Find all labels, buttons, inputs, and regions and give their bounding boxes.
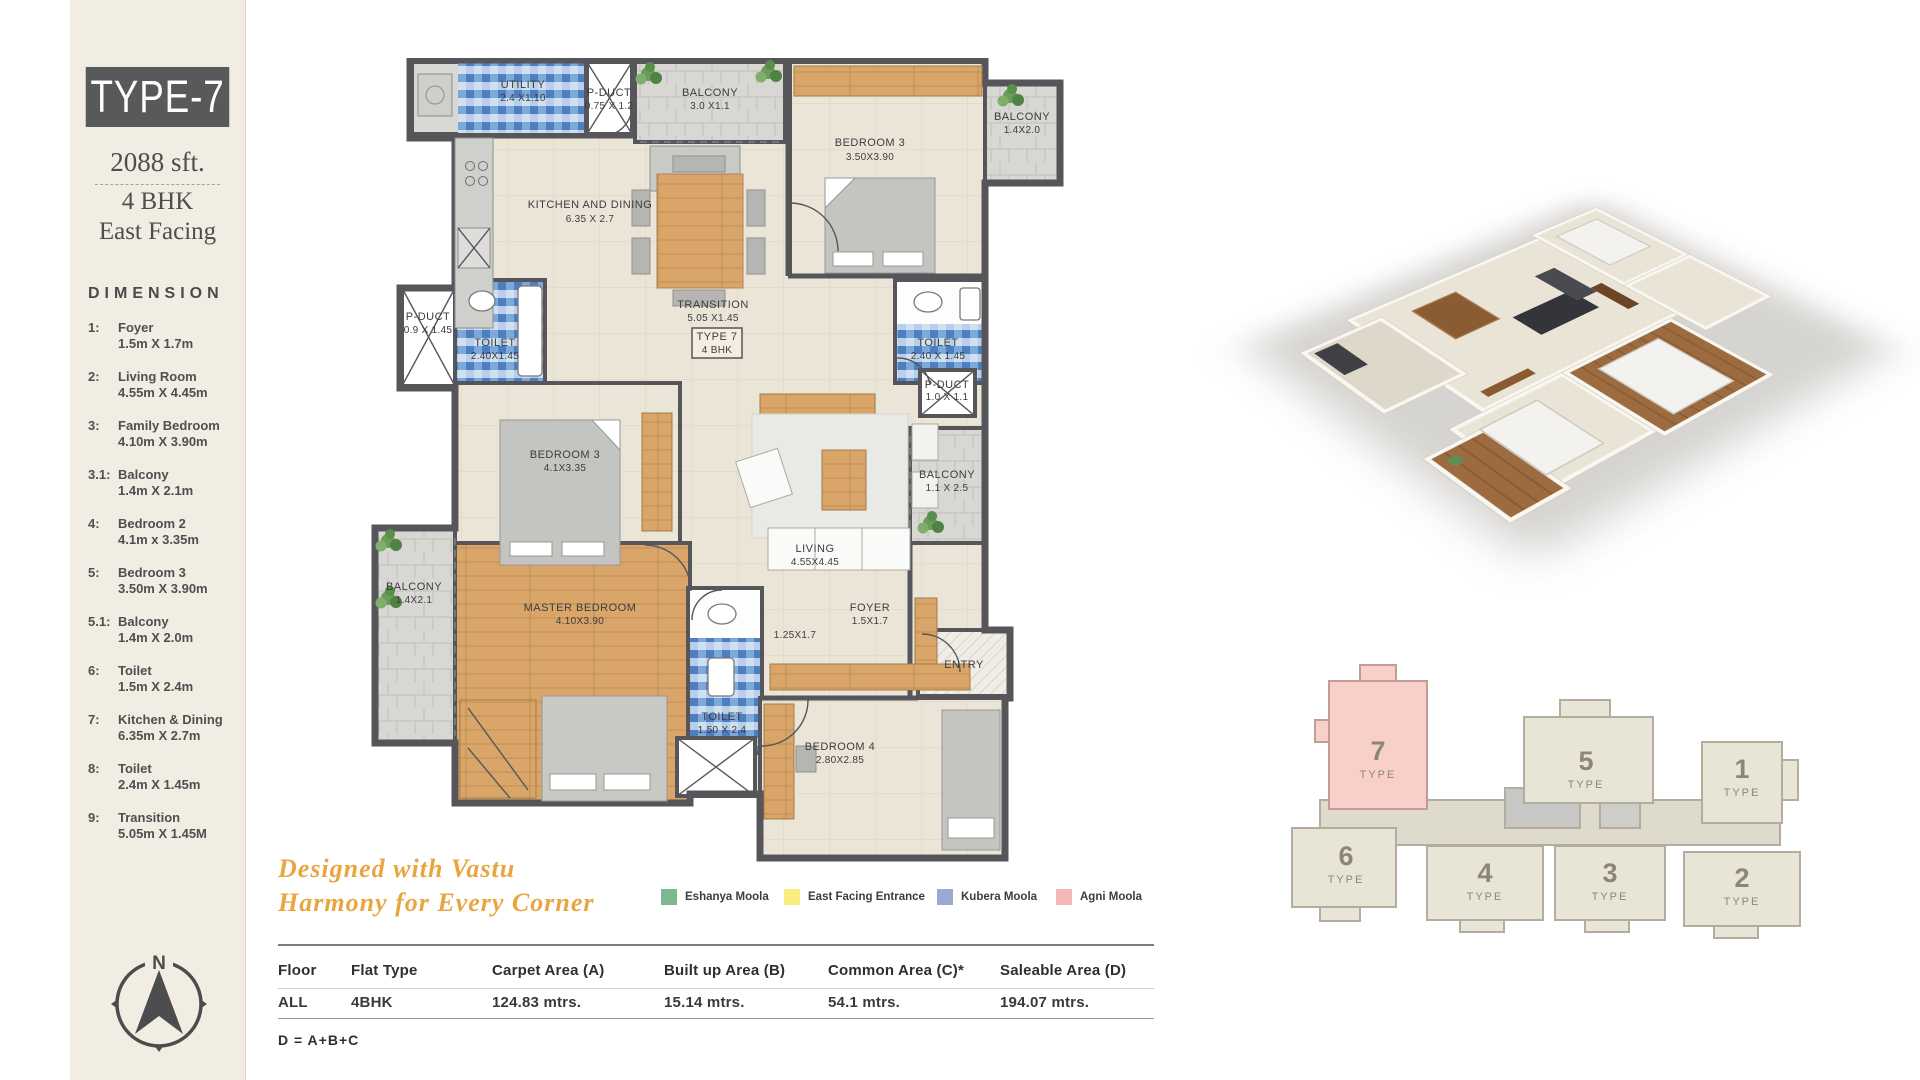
legend-swatch-green <box>661 889 677 905</box>
svg-text:2.80X2.85: 2.80X2.85 <box>816 755 864 766</box>
room-label: BEDROOM 4 <box>805 741 876 753</box>
legend-swatch-yellow <box>784 889 800 905</box>
svg-text:3.0 X1.1: 3.0 X1.1 <box>690 101 730 112</box>
item-text: Toilet2.4m X 1.45m <box>118 761 200 793</box>
svg-text:1.5X1.7: 1.5X1.7 <box>852 616 889 627</box>
room-label: TOILET <box>917 337 958 349</box>
legend-item-eshanya: Eshanya Moola <box>661 889 769 905</box>
svg-text:0.75 X 1.2: 0.75 X 1.2 <box>585 101 634 112</box>
svg-text:TYPE: TYPE <box>1724 787 1761 799</box>
cell-builtup: 15.14 mtrs. <box>664 994 745 1011</box>
item-number: 4: <box>88 516 118 548</box>
list-item: 1:Foyer1.5m X 1.7m <box>88 320 240 352</box>
room-label: FOYER <box>850 602 890 614</box>
keyplan-unit-1 <box>1702 742 1798 823</box>
svg-text:5.05 X1.45: 5.05 X1.45 <box>687 313 739 324</box>
svg-text:1.50 X 2.4: 1.50 X 2.4 <box>698 725 747 736</box>
room-label: P-DUCT <box>587 87 632 99</box>
dimension-list: 1:Foyer1.5m X 1.7m 2:Living Room4.55m X … <box>88 320 240 859</box>
svg-text:4.10X3.90: 4.10X3.90 <box>556 616 604 627</box>
vastu-heading: Designed with Vastu Harmony for Every Co… <box>278 852 595 920</box>
item-number: 5.1: <box>88 614 118 646</box>
floor-plan-2d: UTILITY2.4 X1.10 P-DUCT0.75 X 1.2 BALCON… <box>370 58 1070 868</box>
svg-text:1.1 X 2.5: 1.1 X 2.5 <box>926 483 969 494</box>
entry-label: ENTRY <box>944 659 984 671</box>
cell-saleable: 194.07 mtrs. <box>1000 994 1089 1011</box>
svg-text:4.1X3.35: 4.1X3.35 <box>544 463 587 474</box>
dimension-title: DIMENSION <box>88 285 224 303</box>
table-rule <box>278 944 1154 946</box>
table-rule <box>278 988 1154 989</box>
col-header-flattype: Flat Type <box>351 962 418 979</box>
list-item: 3.1:Balcony1.4m X 2.1m <box>88 467 240 499</box>
unit-area: 2088 sft. <box>70 147 245 178</box>
item-number: 8: <box>88 761 118 793</box>
item-text: Balcony1.4m X 2.0m <box>118 614 193 646</box>
north-arrow-icon <box>135 970 183 1034</box>
col-header-saleable: Saleable Area (D) <box>1000 962 1126 979</box>
list-item: 3:Family Bedroom4.10m X 3.90m <box>88 418 240 450</box>
svg-text:2.4 X1.10: 2.4 X1.10 <box>500 93 546 104</box>
col-header-floor: Floor <box>278 962 317 979</box>
list-item: 8:Toilet2.4m X 1.45m <box>88 761 240 793</box>
list-item: 2:Living Room4.55m X 4.45m <box>88 369 240 401</box>
svg-text:TYPE: TYPE <box>1360 769 1397 781</box>
svg-text:6: 6 <box>1338 841 1353 871</box>
svg-text:0.9 X 1.45: 0.9 X 1.45 <box>404 325 453 336</box>
cell-flattype: 4BHK <box>351 994 393 1011</box>
legend-label: East Facing Entrance <box>808 891 925 903</box>
col-header-carpet: Carpet Area (A) <box>492 962 604 979</box>
table-rule <box>278 1018 1154 1019</box>
svg-text:2: 2 <box>1734 863 1749 893</box>
legend-item-kubera: Kubera Moola <box>937 889 1037 905</box>
legend-label: Kubera Moola <box>961 891 1037 903</box>
type-box-line2: 4 BHK <box>702 345 732 356</box>
item-number: 3.1: <box>88 467 118 499</box>
unit-facing: East Facing <box>70 218 245 246</box>
room-label: BEDROOM 3 <box>835 137 906 149</box>
item-text: Bedroom 24.1m x 3.35m <box>118 516 199 548</box>
list-item: 9:Transition5.05m X 1.45M <box>88 810 240 842</box>
svg-text:1.4X2.1: 1.4X2.1 <box>396 595 433 606</box>
svg-text:6.35 X 2.7: 6.35 X 2.7 <box>566 214 615 225</box>
list-item: 5.1:Balcony1.4m X 2.0m <box>88 614 240 646</box>
svg-text:1.4X2.0: 1.4X2.0 <box>1004 125 1041 136</box>
col-header-builtup: Built up Area (B) <box>664 962 785 979</box>
item-text: Family Bedroom4.10m X 3.90m <box>118 418 220 450</box>
svg-text:7: 7 <box>1370 736 1385 766</box>
item-text: Balcony1.4m X 2.1m <box>118 467 193 499</box>
room-label: KITCHEN AND DINING <box>528 199 653 211</box>
list-item: 7:Kitchen & Dining6.35m X 2.7m <box>88 712 240 744</box>
item-number: 7: <box>88 712 118 744</box>
legend-item-agni: Agni Moola <box>1056 889 1142 905</box>
legend-label: Agni Moola <box>1080 891 1142 903</box>
legend-label: Eshanya Moola <box>685 891 769 903</box>
list-item: 6:Toilet1.5m X 2.4m <box>88 663 240 695</box>
item-text: Kitchen & Dining6.35m X 2.7m <box>118 712 223 744</box>
list-item: 4:Bedroom 24.1m x 3.35m <box>88 516 240 548</box>
room-label: TOILET <box>701 711 742 723</box>
room-label: MASTER BEDROOM <box>524 602 637 614</box>
item-text: Bedroom 33.50m X 3.90m <box>118 565 208 597</box>
room-label: P-DUCT <box>925 379 970 391</box>
svg-text:3.50X3.90: 3.50X3.90 <box>846 152 894 163</box>
divider <box>95 184 220 185</box>
col-header-common: Common Area (C)* <box>828 962 964 979</box>
room-label: TRANSITION <box>677 299 749 311</box>
item-number: 2: <box>88 369 118 401</box>
cell-floor: ALL <box>278 994 308 1011</box>
svg-text:TYPE: TYPE <box>1328 874 1365 886</box>
svg-text:2.40 X 1.45: 2.40 X 1.45 <box>911 351 966 362</box>
keyplan-stairs <box>1600 800 1640 828</box>
item-text: Living Room4.55m X 4.45m <box>118 369 208 401</box>
room-label: BEDROOM 3 <box>530 449 601 461</box>
svg-text:TYPE: TYPE <box>1467 891 1504 903</box>
item-number: 5: <box>88 565 118 597</box>
item-number: 9: <box>88 810 118 842</box>
type-badge: TYPE-7 <box>86 67 230 127</box>
north-compass: N <box>103 938 215 1060</box>
room-label: BALCONY <box>994 111 1050 123</box>
item-text: Foyer1.5m X 1.7m <box>118 320 193 352</box>
list-item: 5:Bedroom 33.50m X 3.90m <box>88 565 240 597</box>
legend-item-east-entrance: East Facing Entrance <box>784 889 925 905</box>
room-label: LIVING <box>795 543 834 555</box>
svg-text:2.40X1.45: 2.40X1.45 <box>471 351 519 362</box>
svg-text:1.0 X 1.1: 1.0 X 1.1 <box>926 392 969 403</box>
svg-text:1: 1 <box>1734 754 1749 784</box>
cell-common: 54.1 mtrs. <box>828 994 900 1011</box>
item-text: Toilet1.5m X 2.4m <box>118 663 193 695</box>
svg-text:TYPE: TYPE <box>1724 896 1761 908</box>
item-number: 6: <box>88 663 118 695</box>
type-box-line1: TYPE 7 <box>697 331 738 343</box>
svg-text:5: 5 <box>1578 746 1593 776</box>
item-number: 3: <box>88 418 118 450</box>
isometric-3d-view <box>1270 95 1860 605</box>
legend-swatch-blue <box>937 889 953 905</box>
legend-swatch-pink <box>1056 889 1072 905</box>
item-text: Transition5.05m X 1.45M <box>118 810 207 842</box>
vastu-heading-line2: Harmony for Every Corner <box>278 886 595 920</box>
room-label: BALCONY <box>682 87 738 99</box>
item-number: 1: <box>88 320 118 352</box>
room-label: TOILET <box>474 337 515 349</box>
vastu-heading-line1: Designed with Vastu <box>278 852 595 886</box>
svg-text:4: 4 <box>1477 858 1492 888</box>
room-label: BALCONY <box>386 581 442 593</box>
room-label: UTILITY <box>501 79 546 91</box>
svg-text:TYPE: TYPE <box>1568 779 1605 791</box>
svg-text:3: 3 <box>1602 858 1617 888</box>
svg-text:4.55X4.45: 4.55X4.45 <box>791 557 839 568</box>
svg-text:TYPE: TYPE <box>1592 891 1629 903</box>
building-key-plan: 7TYPE 5TYPE 1TYPE 6TYPE 4TYPE 3TYPE 2TYP… <box>1280 650 1850 945</box>
room-label: P-DUCT <box>406 311 451 323</box>
brochure-page: TYPE-7 2088 sft. 4 BHK East Facing DIMEN… <box>0 0 1920 1080</box>
cell-carpet: 124.83 mtrs. <box>492 994 581 1011</box>
room-label: BALCONY <box>919 469 975 481</box>
table-footnote: D = A+B+C <box>278 1032 359 1048</box>
iso-plan <box>1247 199 1884 554</box>
corridor-dim-label: 1.25X1.7 <box>774 630 817 641</box>
unit-bhk: 4 BHK <box>70 188 245 216</box>
